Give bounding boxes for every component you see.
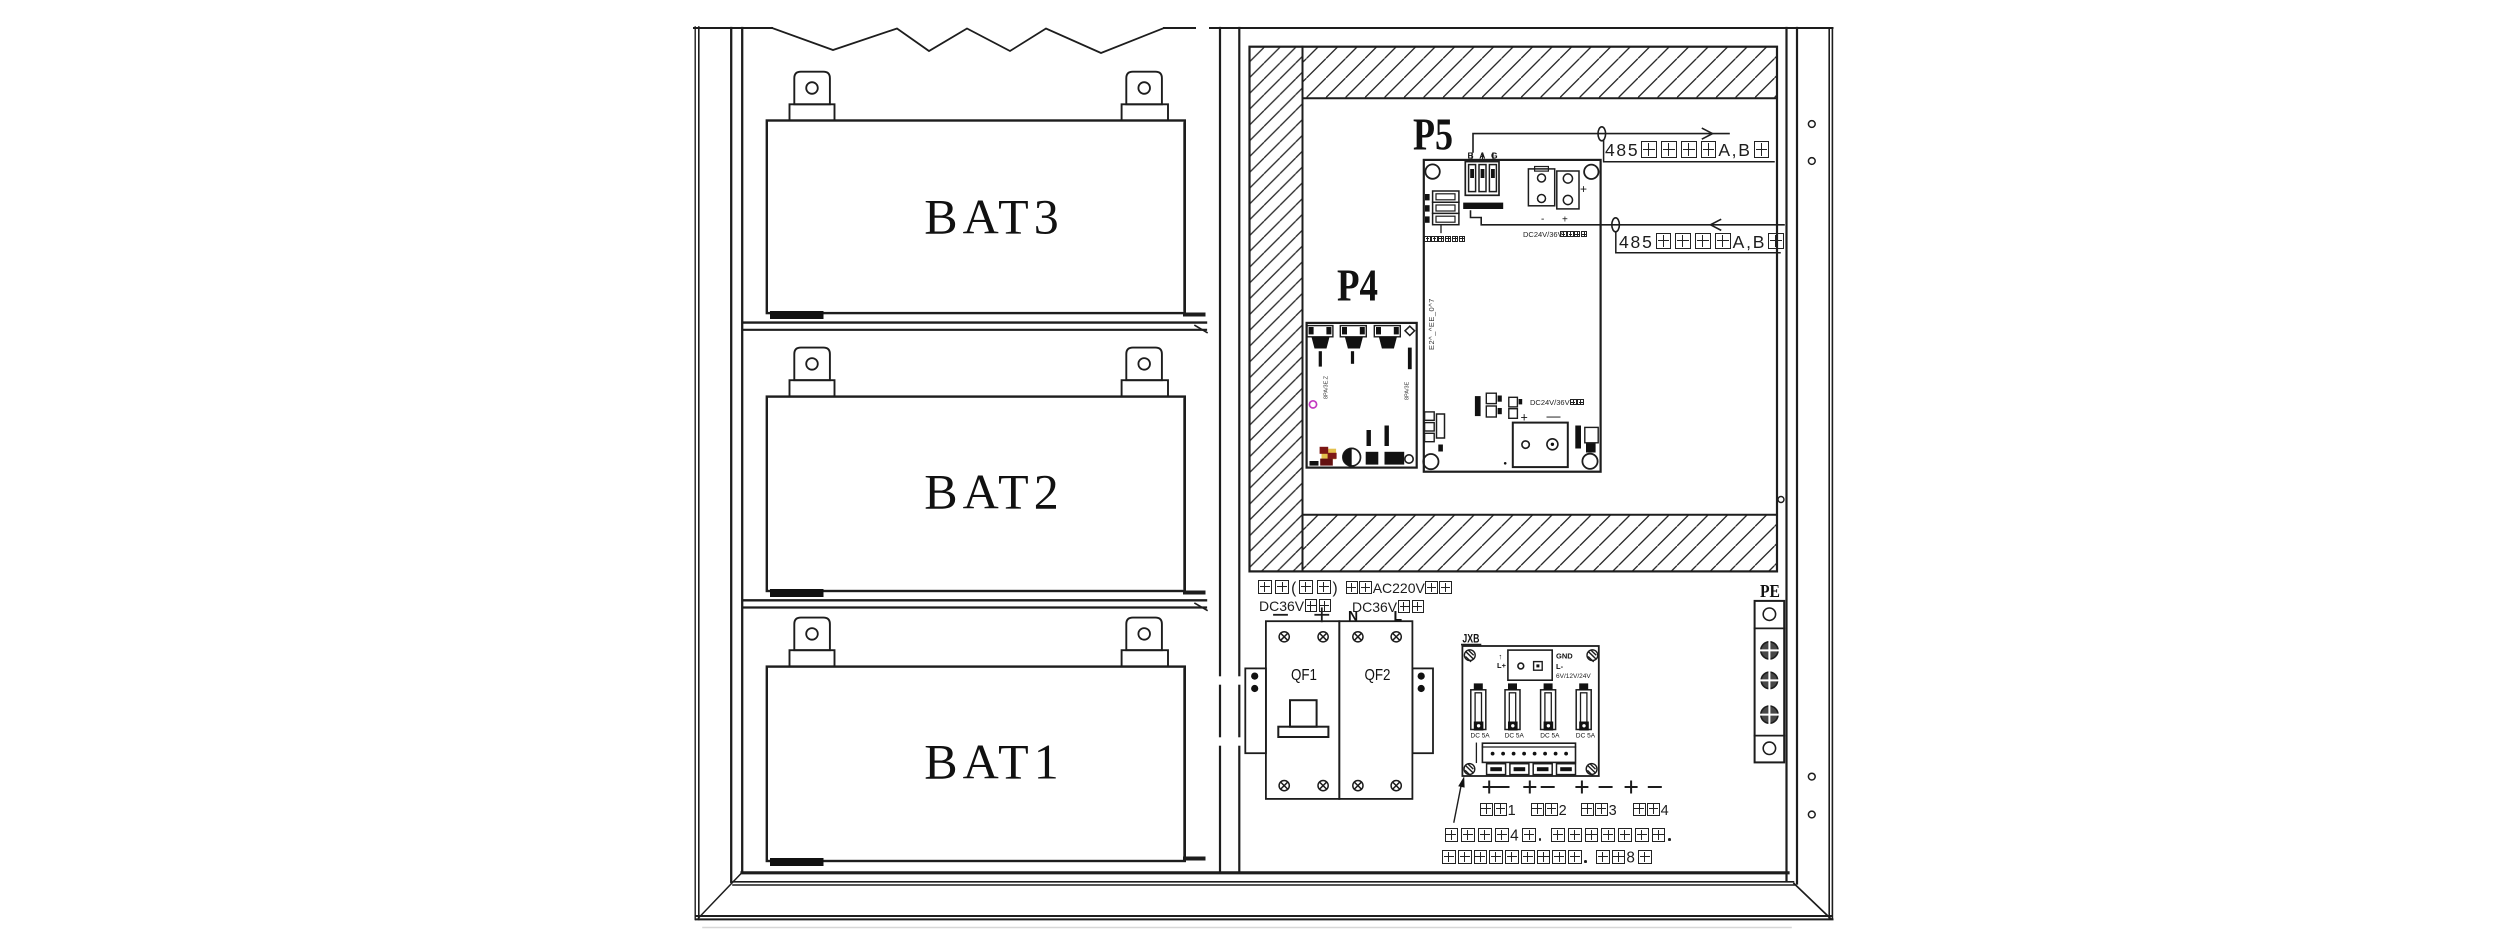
svg-text:BAT3: BAT3 (924, 189, 1063, 245)
svg-text:DC 5A: DC 5A (1576, 733, 1596, 740)
svg-text:8PA/3E: 8PA/3E (1405, 381, 1411, 400)
svg-text:DC24V/36V: DC24V/36V (1523, 230, 1563, 239)
svg-text:BAT2: BAT2 (924, 464, 1063, 520)
svg-text:—: — (1547, 408, 1561, 424)
svg-text:L+: L+ (1497, 661, 1507, 670)
svg-text:↑: ↑ (1499, 652, 1503, 661)
svg-text:QF1: QF1 (1291, 667, 1317, 684)
svg-text:+: + (1562, 215, 1568, 226)
svg-text:DC 5A: DC 5A (1540, 733, 1560, 740)
svg-text:QF2: QF2 (1365, 667, 1391, 684)
svg-text:8PA/3E.Z: 8PA/3E.Z (1324, 375, 1330, 399)
svg-text:PE: PE (1760, 581, 1780, 601)
svg-text:BAT1: BAT1 (924, 734, 1063, 790)
svg-text:DC 5A: DC 5A (1505, 733, 1525, 740)
svg-text:P5: P5 (1413, 109, 1453, 160)
svg-text:P4: P4 (1337, 260, 1378, 311)
svg-text:DC 5A: DC 5A (1471, 733, 1491, 740)
svg-text:E2^_^EE_0^7: E2^_^EE_0^7 (1427, 298, 1436, 350)
svg-text:+: + (1521, 411, 1528, 425)
svg-text:JXB: JXB (1462, 632, 1479, 646)
svg-text:L-: L- (1556, 662, 1564, 671)
svg-text:-: - (1541, 214, 1544, 225)
svg-text:GND: GND (1556, 652, 1573, 661)
svg-text:+: + (1580, 182, 1587, 196)
